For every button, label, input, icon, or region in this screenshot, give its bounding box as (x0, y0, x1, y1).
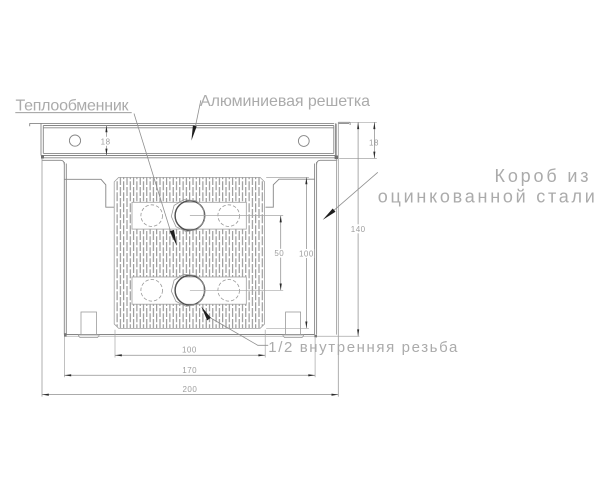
svg-text:18: 18 (101, 138, 111, 147)
svg-text:100: 100 (299, 249, 314, 258)
svg-text:100: 100 (182, 345, 197, 354)
svg-text:200: 200 (182, 385, 197, 394)
svg-text:140: 140 (351, 225, 366, 234)
svg-text:Алюминиевая решетка: Алюминиевая решетка (200, 93, 370, 110)
svg-text:оцинкованной стали: оцинкованной стали (378, 186, 595, 206)
svg-text:50: 50 (274, 249, 284, 258)
svg-text:Теплообменник: Теплообменник (16, 98, 130, 115)
svg-text:18: 18 (369, 138, 379, 147)
svg-text:Короб из: Короб из (495, 166, 589, 186)
svg-text:1/2 внутренняя резьба: 1/2 внутренняя резьба (268, 339, 458, 356)
svg-text:170: 170 (182, 366, 197, 375)
